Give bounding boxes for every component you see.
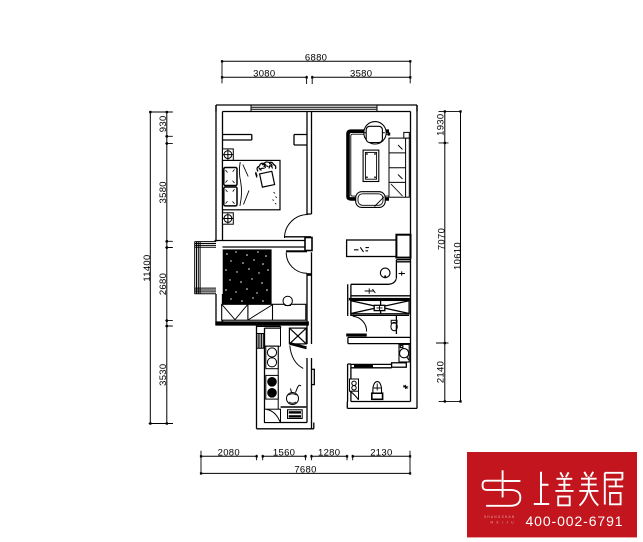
svg-text:7070: 7070 xyxy=(437,228,448,250)
svg-text:2080: 2080 xyxy=(218,447,240,458)
svg-text:10610: 10610 xyxy=(452,242,463,270)
svg-text:11400: 11400 xyxy=(142,254,153,281)
svg-text:3530: 3530 xyxy=(158,364,169,386)
svg-text:2680: 2680 xyxy=(158,273,169,295)
svg-text:1280: 1280 xyxy=(318,447,340,458)
svg-text:6880: 6880 xyxy=(305,52,327,63)
svg-text:3580: 3580 xyxy=(158,181,169,203)
svg-text:1560: 1560 xyxy=(273,447,295,458)
svg-text:3580: 3580 xyxy=(350,68,372,79)
svg-text:930: 930 xyxy=(158,115,169,132)
svg-text:2130: 2130 xyxy=(370,447,392,458)
svg-text:M E I J U: M E I J U xyxy=(491,521,515,525)
svg-text:400-002-6791: 400-002-6791 xyxy=(526,513,624,529)
svg-text:SHANGSHAN: SHANGSHAN xyxy=(484,515,515,519)
svg-text:2140: 2140 xyxy=(436,361,447,383)
svg-text:1930: 1930 xyxy=(436,114,447,136)
svg-text:3080: 3080 xyxy=(253,68,275,79)
svg-text:7680: 7680 xyxy=(294,464,316,475)
